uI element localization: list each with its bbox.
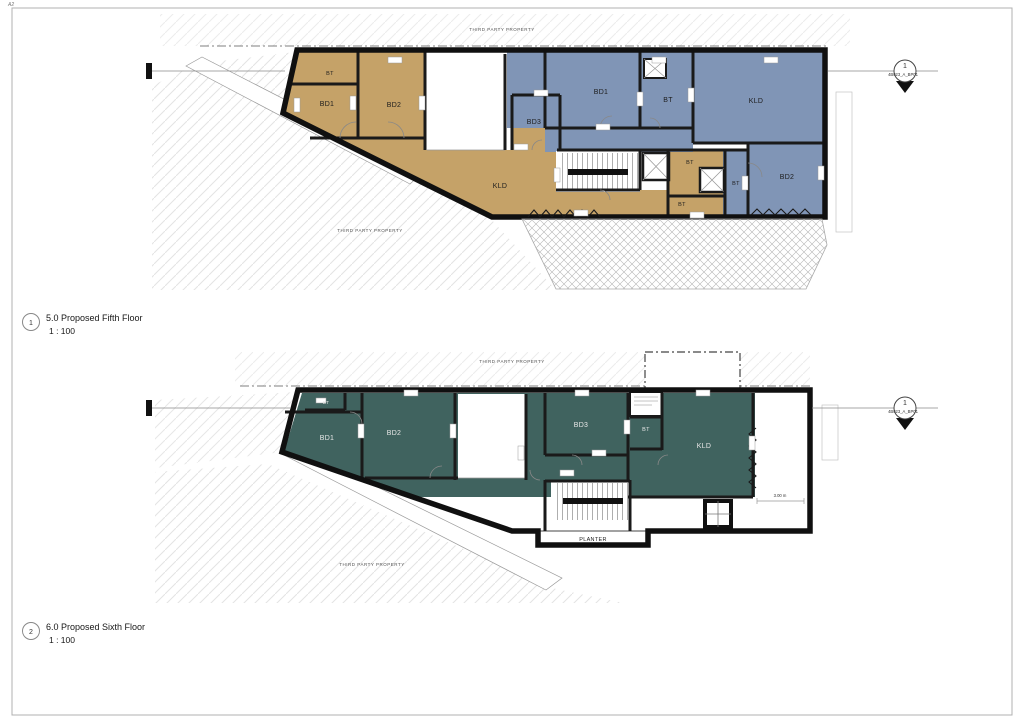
room-label-bt-blue-5: BT (663, 97, 673, 104)
tan-corridor-5 (557, 190, 668, 217)
view-title-1: 5.0 Proposed Fifth Floor (46, 313, 143, 323)
fifth-floor-plan: 1 4B023_A_BP01 BT BD1 BD2 BD3 KLD BD1 BT… (23, 14, 939, 336)
third-party-top-5: THIRD PARTY PROPERTY (469, 27, 534, 32)
third-party-top-6: THIRD PARTY PROPERTY (479, 359, 544, 364)
section-line-end-6 (146, 400, 152, 416)
third-party-side-5: THIRD PARTY PROPERTY (337, 228, 402, 233)
terrace-dimension-text: 3.00 m (774, 493, 787, 498)
room-label-bd1-left-5: BD1 (320, 101, 335, 108)
riser-shaft-6 (630, 392, 662, 416)
riser-shaft-5 (700, 168, 724, 192)
third-party-side-6: THIRD PARTY PROPERTY (339, 562, 404, 567)
room-label-bd2-left-5: BD2 (387, 102, 402, 109)
hatch-left-6 (155, 392, 296, 468)
roof-terrace-grid-5 (522, 219, 827, 289)
section-marker-ref-6: 4B023_A_BP01 (888, 409, 918, 414)
section-marker-number-5: 1 (903, 63, 907, 70)
room-label-bt-topleft-6: BT (323, 400, 329, 405)
planter-label: PLANTER (579, 537, 606, 543)
view-title-2: 6.0 Proposed Sixth Floor (46, 622, 145, 632)
room-label-bd2-6: BD2 (387, 430, 402, 437)
section-marker-6: 1 4B023_A_BP01 (888, 397, 918, 430)
room-label-bt-topleft-5: BT (326, 71, 334, 77)
dashed-outline-above-6 (645, 352, 740, 390)
rooflight-6 (705, 501, 731, 527)
lift-shaft-5 (643, 153, 669, 180)
view-callout-2: 2 (29, 629, 33, 636)
void-6 (458, 394, 526, 478)
stairs-6 (551, 481, 630, 522)
view-title-block-1: 1 5.0 Proposed Fifth Floor 1 : 100 (23, 313, 143, 336)
view-callout-1: 1 (29, 320, 33, 327)
section-marker-arrow-6 (896, 418, 914, 430)
drawing-sheet: A2 (0, 0, 1024, 724)
void-5 (427, 54, 505, 150)
room-label-bd1-6: BD1 (320, 435, 335, 442)
room-label-bt-strip-5: BT (732, 181, 740, 187)
adjacent-structure-5 (836, 92, 852, 232)
room-label-bd3-6: BD3 (574, 422, 589, 429)
sixth-floor-plan: PLANTER (23, 352, 939, 645)
adjacent-structure-6 (822, 405, 838, 460)
room-label-bt-mid1-5: BT (686, 160, 694, 166)
room-label-bd3-5: BD3 (527, 119, 542, 126)
room-label-kld-6: KLD (697, 443, 712, 450)
view-scale-2: 1 : 100 (49, 635, 75, 645)
section-line-end-5 (146, 63, 152, 79)
room-label-bt-mid2-5: BT (678, 202, 686, 208)
room-label-kld-left-5: KLD (493, 183, 508, 190)
view-title-block-2: 2 6.0 Proposed Sixth Floor 1 : 100 (23, 622, 146, 645)
room-label-bt-mid-6: BT (642, 427, 650, 433)
view-scale-1: 1 : 100 (49, 326, 75, 336)
room-label-bd1-blue-5: BD1 (594, 89, 609, 96)
section-marker-5: 1 4B023_A_BP01 (888, 60, 918, 93)
plan-canvas: A2 (0, 0, 1024, 724)
sheet-size-label: A2 (7, 2, 14, 8)
stairs-5 (556, 151, 640, 192)
section-marker-ref-5: 4B023_A_BP01 (888, 72, 918, 77)
room-label-bd2-blue-5: BD2 (780, 174, 795, 181)
section-marker-number-6: 1 (903, 400, 907, 407)
room-label-kld-blue-5: KLD (749, 98, 764, 105)
blue-corridor-5 (545, 128, 693, 152)
section-marker-arrow-5 (896, 81, 914, 93)
